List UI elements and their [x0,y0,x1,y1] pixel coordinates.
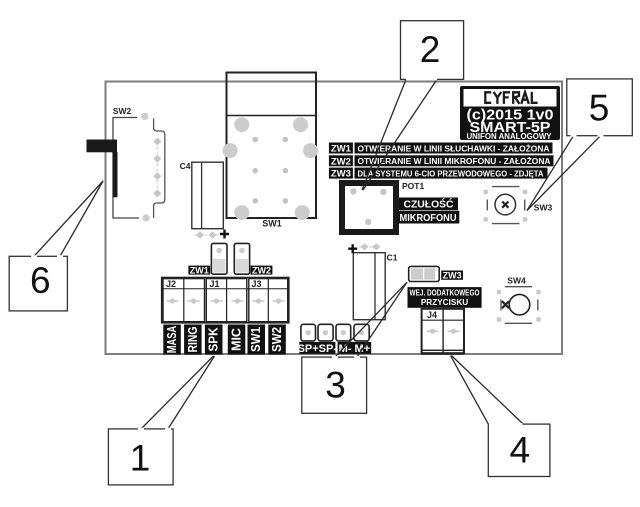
svg-text:UNIFON ANALOGOWY: UNIFON ANALOGOWY [467,132,553,141]
svg-text:2: 2 [420,29,441,70]
svg-text:SW2: SW2 [113,106,132,116]
svg-text:POT1: POT1 [402,181,424,191]
svg-text:SW3: SW3 [534,203,553,213]
svg-text:OTWIERANIE W LINII SŁUCHAWKI -: OTWIERANIE W LINII SŁUCHAWKI - ZAŁOŻONA [358,143,550,153]
svg-text:ZW3: ZW3 [331,169,351,180]
svg-text:J4: J4 [427,310,437,320]
svg-text:4: 4 [510,430,531,471]
svg-text:J2: J2 [166,279,176,289]
svg-text:SP+SP-: SP+SP- [298,343,338,355]
svg-text:J3: J3 [252,279,262,289]
svg-text:J1: J1 [210,279,220,289]
svg-text:ZW1: ZW1 [331,144,352,155]
svg-text:3: 3 [325,365,346,406]
svg-text:SW4: SW4 [507,276,526,286]
svg-text:SW2: SW2 [270,327,284,352]
svg-text:ZW2: ZW2 [252,265,271,275]
svg-text:PRZYCISKU: PRZYCISKU [421,298,468,307]
svg-text:CZUŁOŚĆ: CZUŁOŚĆ [404,198,454,211]
svg-text:OTWIERANIE W LINII MIKROFONU -: OTWIERANIE W LINII MIKROFONU - ZAŁOŻONA [358,156,551,166]
svg-text:MIC: MIC [230,328,244,351]
svg-text:5: 5 [589,88,610,129]
svg-text:1: 1 [130,437,151,478]
svg-text:DLA SYSTEMU 6-CIO PRZEWODOWEGO: DLA SYSTEMU 6-CIO PRZEWODOWEGO - ZDJĘTA [358,168,544,178]
svg-text:C1: C1 [387,253,398,263]
svg-text:RING: RING [186,327,200,353]
svg-text:6: 6 [30,260,51,301]
svg-text:SW1: SW1 [262,219,282,229]
svg-text:SPK: SPK [207,328,221,352]
svg-text:ZW1: ZW1 [190,265,209,275]
svg-text:MASA: MASA [165,326,179,354]
svg-text:WEJ. DODATKOWEGO: WEJ. DODATKOWEGO [410,289,480,298]
svg-text:ZW2: ZW2 [331,156,351,167]
svg-text:MIKROFONU: MIKROFONU [400,212,457,224]
svg-text:SW1: SW1 [249,327,263,352]
svg-text:C4: C4 [180,161,191,171]
svg-text:ZW3: ZW3 [443,270,462,280]
